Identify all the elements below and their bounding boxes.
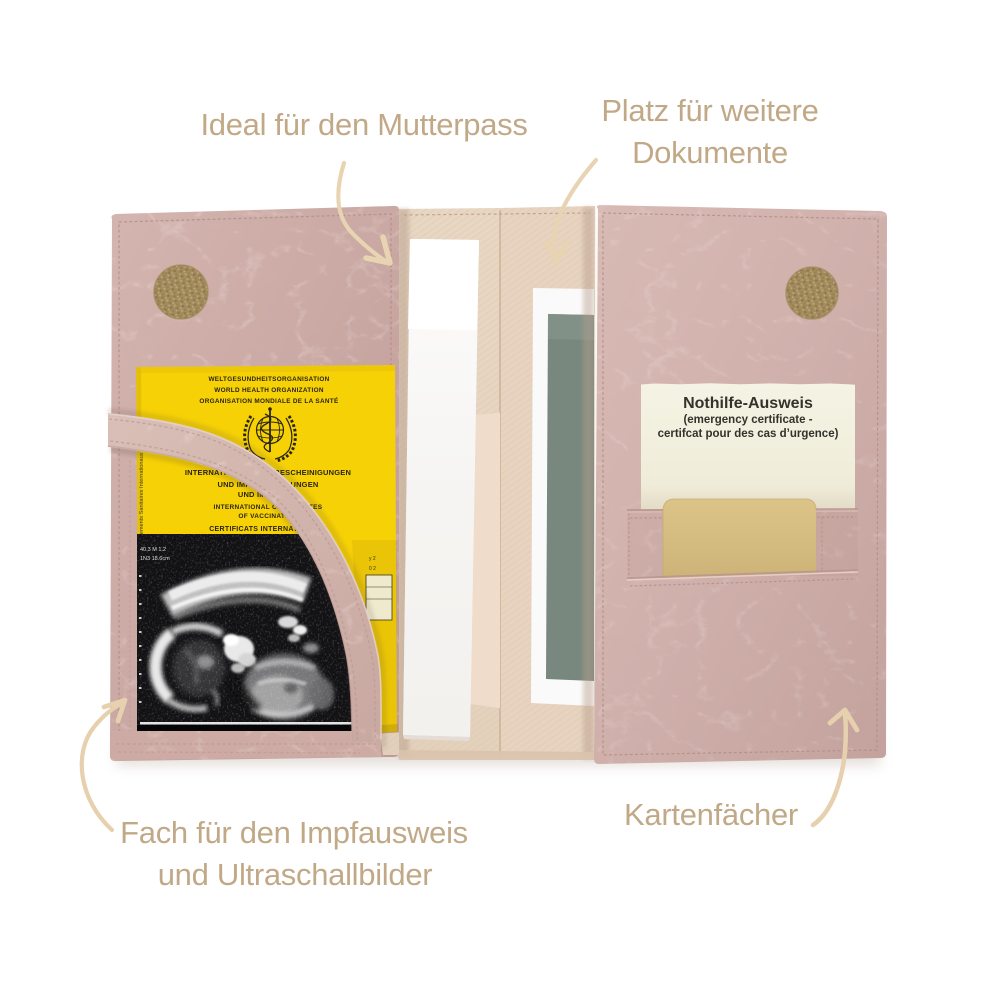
svg-text:WORLD HEALTH ORGANIZATION: WORLD HEALTH ORGANIZATION xyxy=(214,387,324,394)
svg-text:Kartenfächer: Kartenfächer xyxy=(624,797,798,832)
svg-text:ORGANISATION MONDIALE DE LA SA: ORGANISATION MONDIALE DE LA SANTÉ xyxy=(199,396,339,405)
svg-text:Fach für den Impfausweis: Fach für den Impfausweis xyxy=(120,815,468,850)
svg-text:1N3 18.6cm: 1N3 18.6cm xyxy=(140,556,170,562)
svg-text:Ideal für den Mutterpass: Ideal für den Mutterpass xyxy=(200,107,527,142)
svg-text:40.3 M 1.2: 40.3 M 1.2 xyxy=(140,547,166,553)
svg-text:(emergency certificate -: (emergency certificate - xyxy=(683,414,812,426)
svg-text:WELTGESUNDHEITSORGANISATION: WELTGESUNDHEITSORGANISATION xyxy=(208,376,329,383)
svg-text:Platz für weitere: Platz für weitere xyxy=(601,93,818,128)
svg-text:Nothilfe-Ausweis: Nothilfe-Ausweis xyxy=(683,395,813,412)
svg-text:und Ultraschallbilder: und Ultraschallbilder xyxy=(158,857,433,892)
svg-text:Dokumente: Dokumente xyxy=(632,135,788,170)
svg-text:certifcat pour des cas d’urgen: certifcat pour des cas d’urgence) xyxy=(658,428,839,440)
